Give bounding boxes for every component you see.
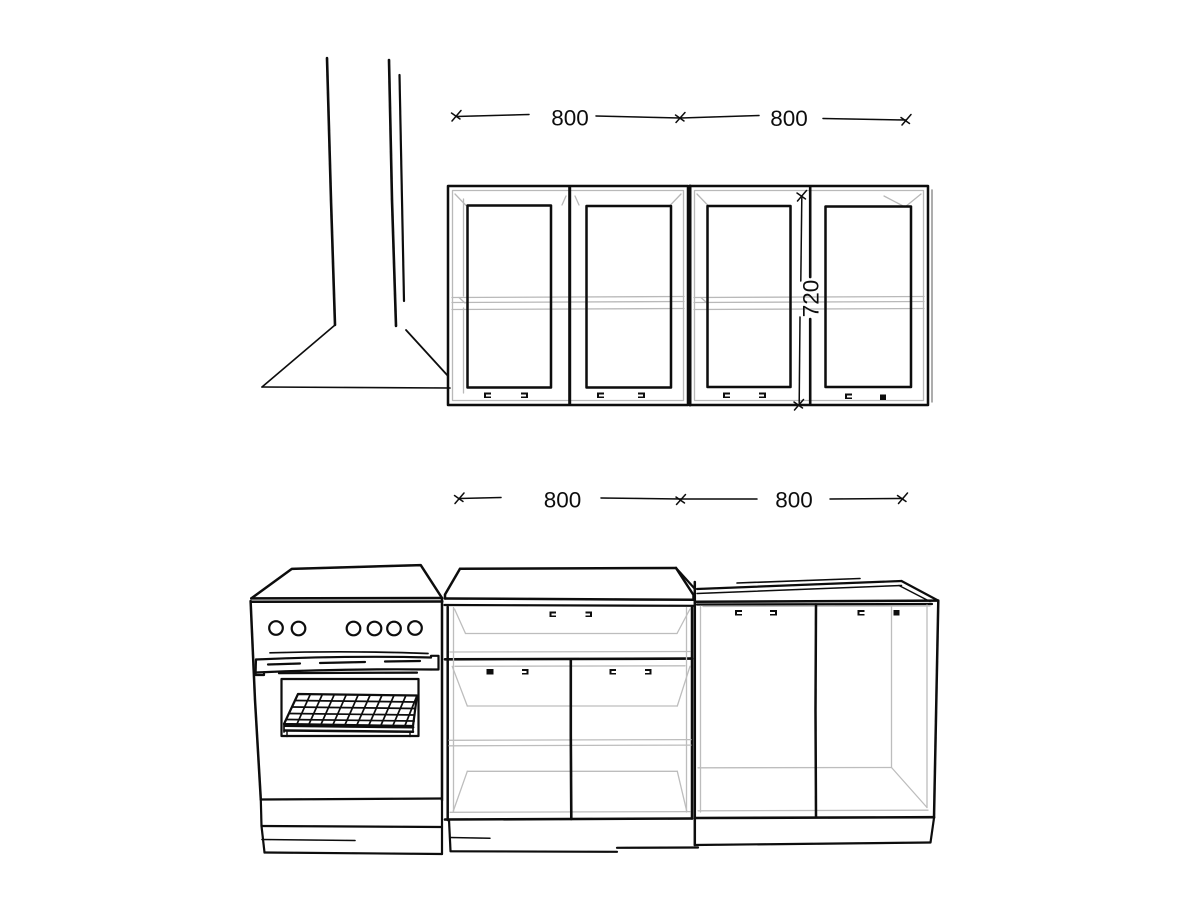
svg-text:800: 800 [775, 488, 813, 513]
svg-text:720: 720 [799, 280, 824, 318]
svg-text:800: 800 [544, 488, 582, 513]
svg-text:800: 800 [770, 106, 808, 131]
svg-text:800: 800 [551, 106, 589, 131]
